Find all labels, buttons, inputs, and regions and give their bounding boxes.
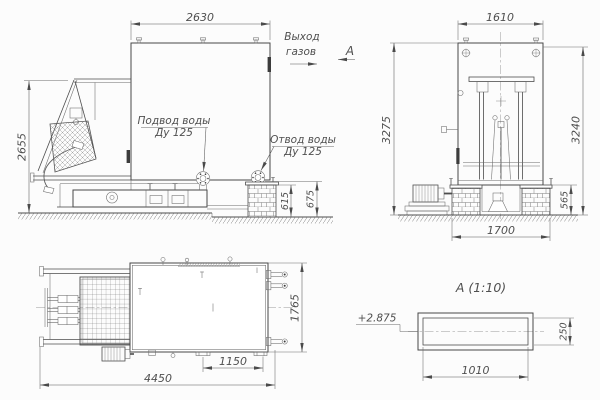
brick-pedestal-right (522, 188, 550, 215)
dim-side-height-left: 3275 (380, 116, 393, 144)
dim-plan-depth: 1765 (289, 294, 302, 322)
wall-sensor (442, 90, 464, 132)
dim-detail-height: 250 (559, 322, 570, 340)
front-view: 2630 2655 615 675 Подвод воды Ду 125 Отв… (16, 11, 356, 224)
elevation-value: +2.875 (358, 313, 397, 325)
wall-weld-mark-right (268, 57, 271, 72)
dim-detail-width: 1010 (462, 364, 490, 377)
detail-title: А (1:10) (455, 280, 506, 295)
drive-motor-plan (102, 347, 134, 361)
discharge-cone (489, 201, 508, 212)
roller-wheel (107, 192, 118, 203)
dim-plan-drain-offset: 1150 (219, 355, 247, 368)
dim-front-width: 2630 (186, 11, 214, 24)
discharge-box (493, 193, 503, 201)
hose-nozzle (44, 187, 55, 194)
technical-drawing: 2630 2655 615 675 Подвод воды Ду 125 Отв… (0, 0, 600, 400)
dim-base-width: 1700 (487, 224, 515, 237)
wall-weld-mark-side (456, 148, 459, 164)
dim-outlet-height: 675 (306, 190, 317, 208)
ground-side (398, 215, 578, 222)
brick-pedestal-left (452, 188, 480, 215)
furnace-body-side (458, 43, 543, 185)
detail-a-view: А (1:10) +2.875 1010 250 (356, 280, 574, 381)
dim-base-height: 565 (560, 191, 571, 209)
plan-view: 1765 1150 4450 (36, 257, 307, 389)
brick-pedestal-front (246, 182, 279, 217)
label-gas-outlet-2: газов (286, 46, 316, 58)
side-dimensions: 1610 3275 3240 1700 565 (380, 11, 588, 241)
dim-side-width: 1610 (486, 11, 514, 24)
label-water-drain: Отвод воды (270, 134, 336, 146)
dim-front-height: 2655 (16, 133, 29, 161)
label-water-supply: Подвод воды (138, 115, 211, 127)
technical-drawing-sheet: 2630 2655 615 675 Подвод воды Ду 125 Отв… (0, 0, 600, 400)
dim-flange-height: 615 (280, 192, 291, 210)
pipe-stubs-plan (266, 270, 287, 345)
roof-fitting (136, 38, 258, 43)
label-gas-outlet-1: Выход (284, 31, 319, 43)
dim-side-height-right: 3240 (570, 116, 583, 144)
base-side (449, 178, 553, 215)
roof-slot (178, 263, 240, 266)
furnace-body-front (127, 38, 271, 180)
wall-weld-mark-left (127, 150, 130, 163)
roof-fitting-side (462, 38, 541, 58)
front-dimensions: 2630 2655 615 675 Подвод воды Ду 125 Отв… (16, 11, 356, 217)
label-water-supply-dn: Ду 125 (154, 127, 193, 139)
drive-motor-side (405, 185, 452, 215)
side-view: 1610 3275 3240 1700 565 (380, 11, 588, 241)
ground-front (18, 213, 333, 224)
label-water-drain-dn: Ду 125 (283, 146, 322, 158)
conveyor-base-front (31, 173, 249, 209)
grate-plan (80, 277, 135, 345)
section-marker-label: А (345, 44, 354, 58)
elevation-mark: +2.875 (356, 313, 418, 332)
water-supply-flange (196, 172, 210, 190)
dim-plan-length: 4450 (144, 372, 172, 385)
furnace-body-plan (130, 257, 268, 352)
